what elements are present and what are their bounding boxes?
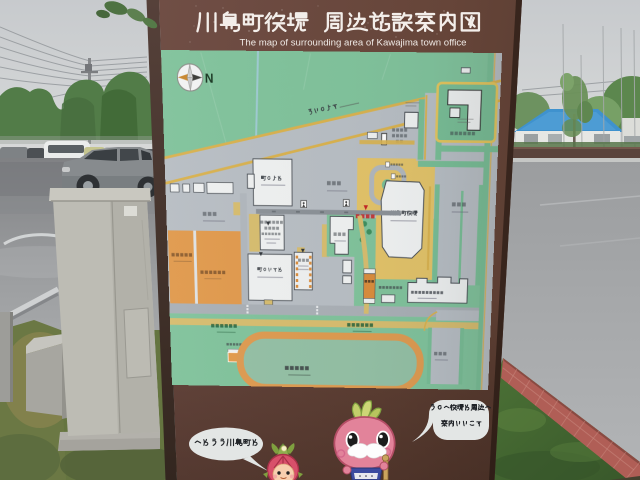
svg-text:The map of surrounding area of: The map of surrounding area of Kawajima … xyxy=(240,38,467,49)
